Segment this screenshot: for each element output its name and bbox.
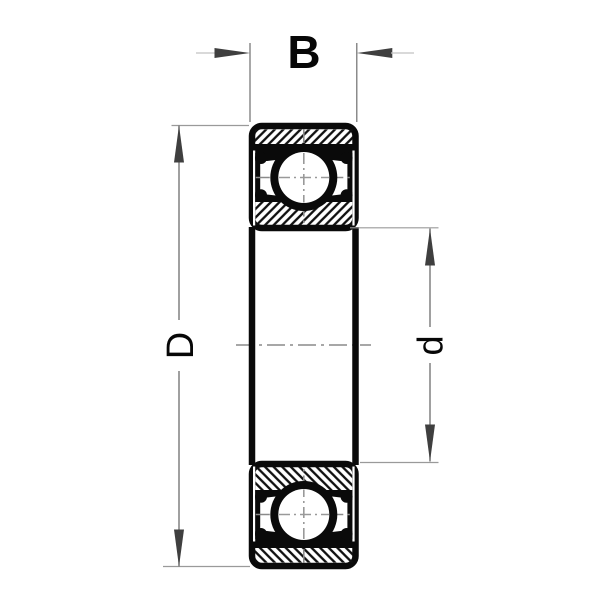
svg-text:B: B	[287, 26, 320, 78]
svg-text:D: D	[160, 332, 202, 359]
svg-text:d: d	[410, 335, 451, 355]
